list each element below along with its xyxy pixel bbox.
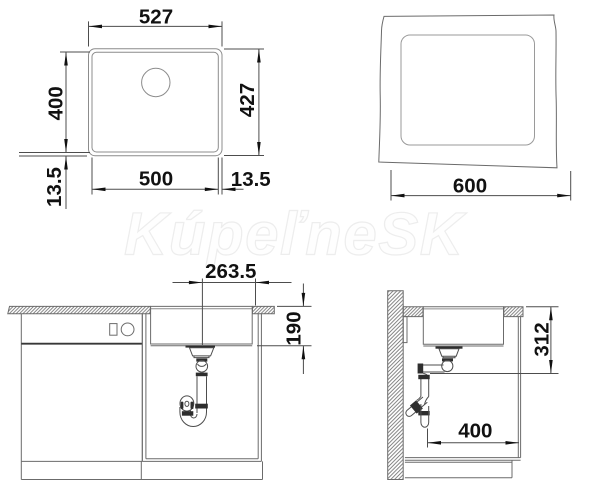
svg-text:527: 527 xyxy=(139,6,173,29)
svg-text:427: 427 xyxy=(236,83,259,117)
svg-text:312: 312 xyxy=(530,322,553,356)
svg-text:600: 600 xyxy=(453,175,487,198)
svg-text:KúpeľneSK: KúpeľneSK xyxy=(124,201,467,268)
svg-text:13.5: 13.5 xyxy=(231,168,271,191)
svg-text:13.5: 13.5 xyxy=(43,167,66,207)
svg-text:263.5: 263.5 xyxy=(205,260,256,283)
svg-text:190: 190 xyxy=(282,311,305,345)
svg-text:400: 400 xyxy=(458,420,492,443)
svg-text:500: 500 xyxy=(139,167,173,190)
svg-text:400: 400 xyxy=(45,86,68,120)
